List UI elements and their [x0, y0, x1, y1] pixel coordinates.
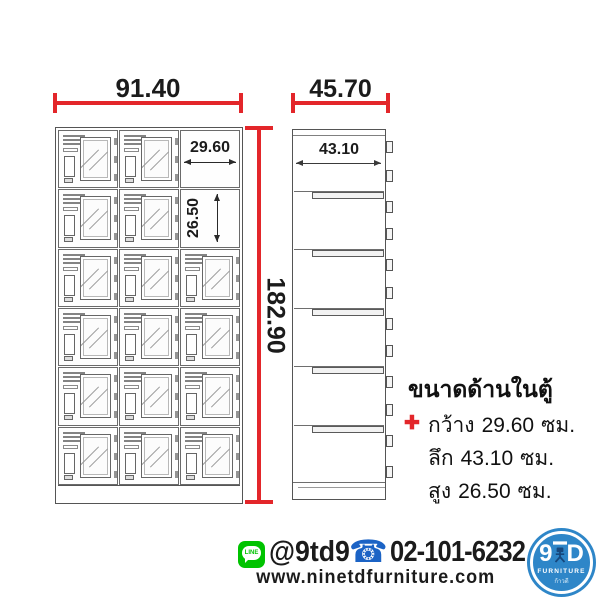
- side-hinge-icon: [386, 170, 393, 182]
- glass-window: [202, 374, 233, 418]
- shelf-line: [294, 425, 384, 426]
- door-hinge-icon: [236, 393, 239, 400]
- side-hinge-icon: [386, 201, 393, 213]
- door-hinge-icon: [236, 293, 239, 300]
- door-hinge-icon: [114, 352, 117, 359]
- glass-window: [80, 315, 111, 359]
- glass-window: [80, 137, 111, 181]
- label-plate: [63, 148, 78, 152]
- door-handle: [125, 156, 136, 177]
- locker-grid: 29.6026.50: [58, 130, 240, 485]
- inner-depth-arrow: [296, 163, 381, 164]
- door-handle: [186, 275, 197, 296]
- label-plate: [63, 207, 78, 211]
- door-hinge-icon: [175, 375, 178, 382]
- label-plate: [124, 267, 139, 271]
- glass-window: [202, 256, 233, 300]
- label-plate: [124, 207, 139, 211]
- door-hinge-icon: [114, 393, 117, 400]
- side-plinth-line: [298, 487, 385, 488]
- locker-door: [180, 249, 240, 307]
- door-hinge-icon: [114, 275, 117, 282]
- door-hinge-icon: [236, 453, 239, 460]
- side-hinge-icon: [386, 435, 393, 447]
- spec-box: ขนาดด้านในตู้ ✚ กว้าง29.60ซม. ลึก43.10ซม…: [402, 372, 598, 408]
- door-hinge-icon: [175, 156, 178, 163]
- locker-door: [180, 367, 240, 425]
- locker-door: [119, 427, 179, 485]
- door-hinge-icon: [175, 334, 178, 341]
- line-bubble-icon: LINE: [242, 546, 261, 560]
- brand-logo: 9 D FURNITURE ก้าวดี: [527, 528, 596, 597]
- label-plate: [63, 385, 78, 389]
- door-hinge-icon: [175, 257, 178, 264]
- door-hinge-icon: [114, 334, 117, 341]
- door-lock: [125, 297, 134, 302]
- glass-window: [141, 434, 172, 478]
- door-handle: [64, 156, 75, 177]
- locker-door: [58, 427, 118, 485]
- label-plate: [63, 326, 78, 330]
- height-dimension-label: 182.90: [261, 127, 289, 504]
- door-lock: [64, 475, 73, 480]
- door-lock: [186, 356, 195, 361]
- glass-window: [80, 434, 111, 478]
- line-app-icon: LINE: [238, 541, 265, 568]
- website-text: www.ninetdfurniture.com: [237, 567, 514, 589]
- side-hinge-icon: [386, 141, 393, 153]
- red-plus-icon: ✚: [404, 412, 420, 435]
- door-hinge-icon: [175, 215, 178, 222]
- locker-door: [58, 130, 118, 188]
- front-width-dimension-label: 91.40: [53, 73, 243, 104]
- door-lock: [64, 237, 73, 242]
- door-hinge-icon: [114, 453, 117, 460]
- spec-line-height: สูง26.50ซม.: [428, 475, 559, 508]
- label-plate: [124, 445, 139, 449]
- label-plate: [185, 267, 200, 271]
- door-hinge-icon: [114, 215, 117, 222]
- label-plate: [124, 385, 139, 389]
- locker-door: [119, 367, 179, 425]
- glass-window: [141, 196, 172, 240]
- phone-number-text: 02-101-6232: [390, 536, 525, 569]
- door-hinge-icon: [114, 174, 117, 181]
- door-lock: [186, 415, 195, 420]
- side-hinge-icon: [386, 228, 393, 240]
- door-lock: [64, 415, 73, 420]
- door-lock: [64, 297, 73, 302]
- telephone-icon: ☎: [349, 534, 388, 570]
- inner-width-cell: 29.60: [180, 130, 240, 188]
- side-top-edge: [293, 135, 385, 136]
- door-hinge-icon: [236, 257, 239, 264]
- shelf-line: [294, 249, 384, 250]
- door-hinge-icon: [114, 375, 117, 382]
- locker-door: [58, 308, 118, 366]
- door-hinge-icon: [236, 471, 239, 478]
- label-plate: [63, 445, 78, 449]
- inner-depth-label: 43.10: [293, 141, 385, 159]
- side-hinge-icon: [386, 287, 393, 299]
- label-plate: [185, 385, 200, 389]
- door-lock: [125, 237, 134, 242]
- line-id-text: @9td9: [269, 536, 350, 569]
- brand-tagline: ก้าวดี: [533, 576, 590, 586]
- door-hinge-icon: [175, 435, 178, 442]
- label-plate: [185, 445, 200, 449]
- glass-window: [141, 374, 172, 418]
- shelf-line: [294, 191, 384, 192]
- door-handle: [64, 334, 75, 355]
- label-plate: [124, 148, 139, 152]
- glass-window: [80, 196, 111, 240]
- brand-logo-inner: 9 D FURNITURE ก้าวดี: [530, 531, 593, 594]
- locker-door: [180, 427, 240, 485]
- product-dimension-diagram: 91.40 45.70 182.90 29.6026.50 43.10 ขนาด…: [0, 0, 600, 600]
- glass-window: [80, 374, 111, 418]
- side-hinge-icon: [386, 318, 393, 330]
- shelf-line: [294, 366, 384, 367]
- door-hinge-icon: [236, 316, 239, 323]
- brand-subtitle: FURNITURE: [533, 568, 590, 575]
- door-hinge-icon: [236, 435, 239, 442]
- door-hinge-icon: [175, 352, 178, 359]
- side-view-drawing: 43.10: [292, 129, 386, 500]
- office-chair-icon: [553, 541, 567, 566]
- door-lock: [125, 356, 134, 361]
- label-plate: [185, 326, 200, 330]
- locker-door: [58, 189, 118, 247]
- inner-height-cell: 26.50: [180, 189, 240, 247]
- door-hinge-icon: [175, 453, 178, 460]
- locker-door: [119, 130, 179, 188]
- locker-door: [58, 249, 118, 307]
- door-handle: [64, 393, 75, 414]
- label-plate: [63, 267, 78, 271]
- side-hinge-icon: [386, 376, 393, 388]
- shelf-line: [294, 308, 384, 309]
- glass-window: [202, 434, 233, 478]
- door-hinge-icon: [114, 197, 117, 204]
- door-hinge-icon: [236, 411, 239, 418]
- door-hinge-icon: [114, 316, 117, 323]
- glass-window: [202, 315, 233, 359]
- door-hinge-icon: [175, 293, 178, 300]
- door-hinge-icon: [175, 471, 178, 478]
- front-width-dimension-line: [53, 101, 243, 105]
- door-hinge-icon: [175, 393, 178, 400]
- door-lock: [64, 356, 73, 361]
- spec-line-width: กว้าง29.60ซม.: [428, 409, 582, 442]
- door-hinge-icon: [236, 375, 239, 382]
- door-handle: [125, 453, 136, 474]
- locker-door: [119, 249, 179, 307]
- door-handle: [125, 334, 136, 355]
- side-bottom-edge: [293, 482, 385, 483]
- spec-line-depth: ลึก43.10ซม.: [428, 442, 561, 475]
- door-hinge-icon: [236, 275, 239, 282]
- inner-width-arrow: [184, 162, 236, 163]
- door-lock: [186, 297, 195, 302]
- glass-window: [141, 315, 172, 359]
- side-hinge-icon: [386, 345, 393, 357]
- door-hinge-icon: [114, 233, 117, 240]
- door-handle: [64, 275, 75, 296]
- door-handle: [186, 453, 197, 474]
- door-hinge-icon: [175, 174, 178, 181]
- door-hinge-icon: [175, 411, 178, 418]
- spec-title: ขนาดด้านในตู้: [408, 372, 598, 408]
- door-handle: [125, 275, 136, 296]
- door-handle: [125, 215, 136, 236]
- door-hinge-icon: [175, 233, 178, 240]
- door-lock: [125, 475, 134, 480]
- door-lock: [64, 178, 73, 183]
- front-view-drawing: 29.6026.50: [55, 127, 243, 504]
- door-hinge-icon: [114, 471, 117, 478]
- door-hinge-icon: [114, 257, 117, 264]
- side-hinge-icon: [386, 259, 393, 271]
- inner-height-arrow: [217, 194, 218, 241]
- door-hinge-icon: [114, 156, 117, 163]
- glass-window: [141, 137, 172, 181]
- door-lock: [186, 475, 195, 480]
- locker-door: [119, 189, 179, 247]
- side-hinge-icon: [386, 404, 393, 416]
- locker-door: [180, 308, 240, 366]
- door-hinge-icon: [175, 275, 178, 282]
- side-hinge-icon: [386, 466, 393, 478]
- locker-door: [119, 308, 179, 366]
- inner-width-label: 29.60: [181, 139, 239, 157]
- inner-height-label: 26.50: [181, 190, 207, 246]
- door-hinge-icon: [175, 197, 178, 204]
- door-hinge-icon: [175, 316, 178, 323]
- door-hinge-icon: [114, 411, 117, 418]
- door-hinge-icon: [114, 138, 117, 145]
- front-plinth: [58, 485, 240, 502]
- locker-door: [58, 367, 118, 425]
- door-lock: [125, 415, 134, 420]
- brand-name: 9 D: [533, 541, 590, 566]
- door-handle: [186, 334, 197, 355]
- door-hinge-icon: [175, 138, 178, 145]
- door-hinge-icon: [114, 435, 117, 442]
- door-hinge-icon: [114, 293, 117, 300]
- glass-window: [80, 256, 111, 300]
- label-plate: [124, 326, 139, 330]
- door-hinge-icon: [236, 352, 239, 359]
- door-hinge-icon: [236, 334, 239, 341]
- door-lock: [125, 178, 134, 183]
- door-handle: [64, 453, 75, 474]
- glass-window: [141, 256, 172, 300]
- door-handle: [186, 393, 197, 414]
- depth-dimension-label: 45.70: [291, 75, 390, 104]
- depth-dimension-line: [291, 101, 390, 105]
- door-handle: [64, 215, 75, 236]
- door-handle: [125, 393, 136, 414]
